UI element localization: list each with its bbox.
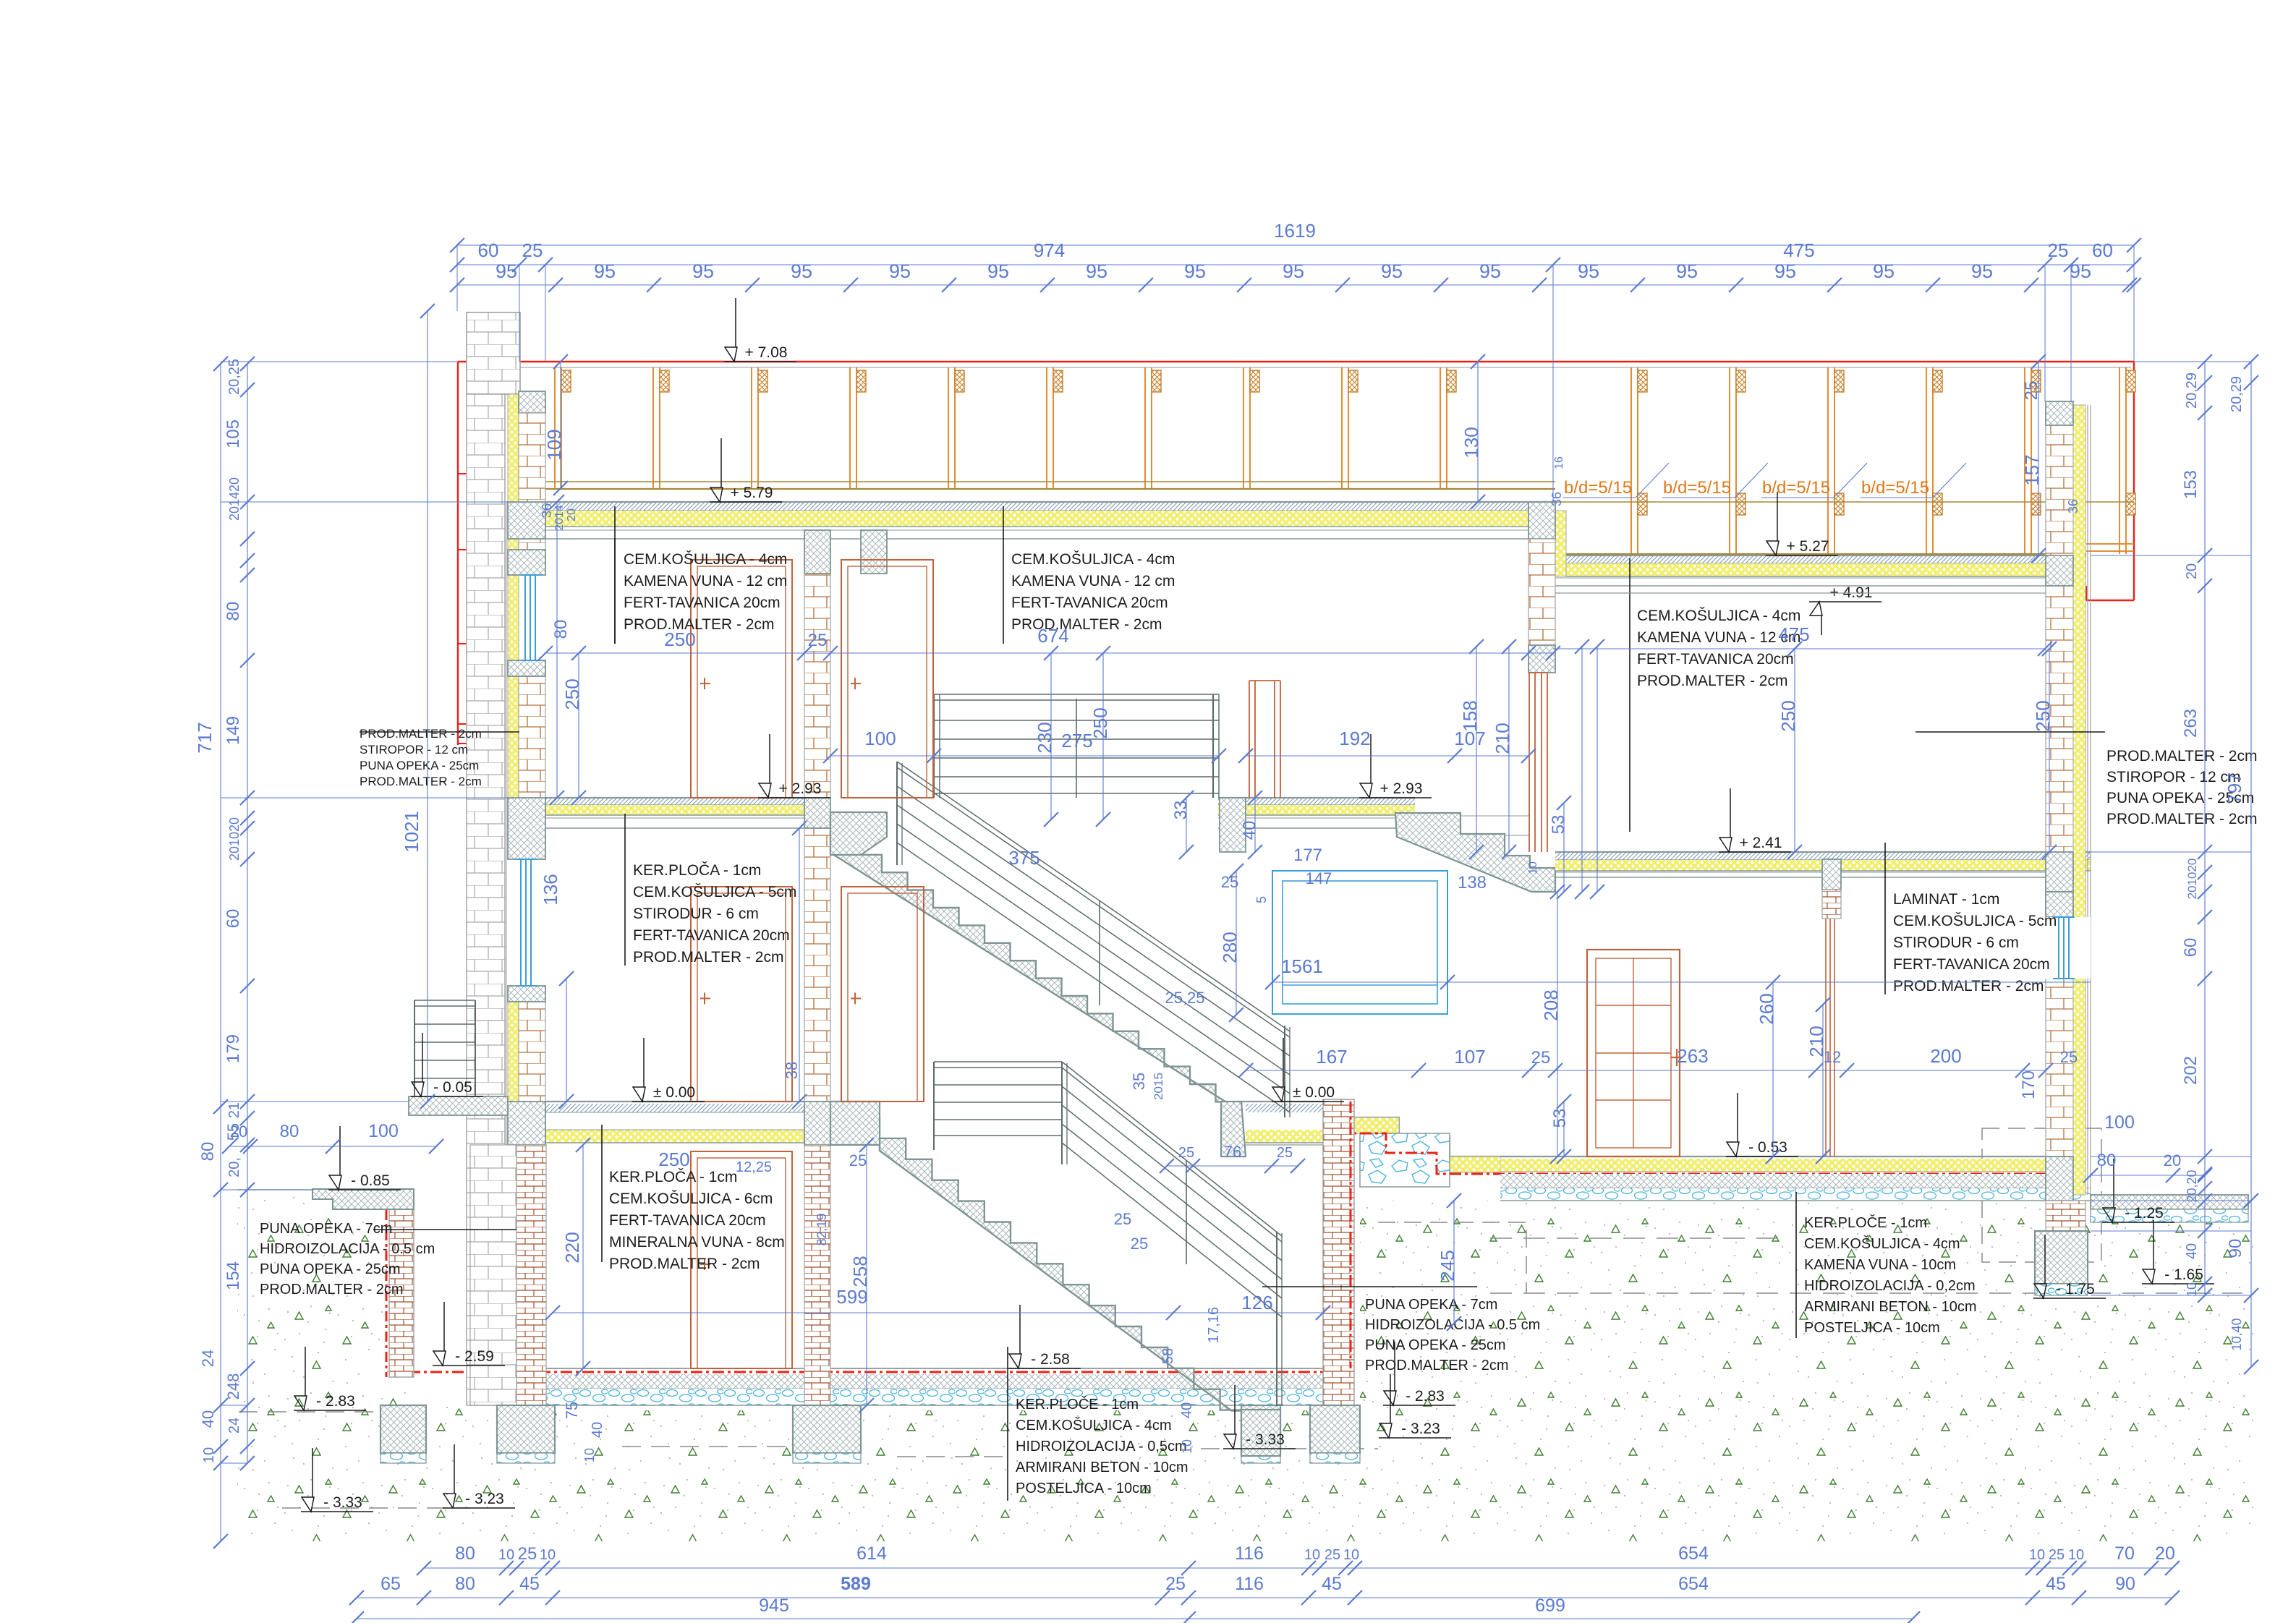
svg-text:475: 475 [1783,239,1814,261]
svg-text:+ 5.27: + 5.27 [1787,538,1829,555]
svg-text:945: 945 [759,1596,789,1616]
svg-text:25: 25 [518,1544,537,1564]
svg-text:80: 80 [455,1543,475,1564]
svg-text:PROD.MALTER - 2cm: PROD.MALTER - 2cm [1893,978,2044,994]
svg-text:192: 192 [1339,728,1370,749]
svg-text:60: 60 [2092,239,2113,261]
svg-text:PROD.MALTER - 2cm: PROD.MALTER - 2cm [360,775,482,788]
svg-text:- 3.33: - 3.33 [1246,1431,1285,1448]
svg-text:475: 475 [1778,623,1809,645]
svg-text:FERT-TAVANICA 20cm: FERT-TAVANICA 20cm [1893,956,2050,973]
svg-text:PUNA OPEKA - 7cm: PUNA OPEKA - 7cm [260,1221,392,1237]
svg-text:CEM.KOŠULJICA - 6cm: CEM.KOŠULJICA - 6cm [609,1190,773,1207]
svg-text:10: 10 [2068,1547,2084,1563]
svg-text:220: 220 [561,1232,583,1263]
svg-text:STIRODUR - 6 cm: STIRODUR - 6 cm [633,906,759,922]
svg-text:+ 5.79: + 5.79 [731,485,773,501]
svg-text:95: 95 [1971,260,1993,282]
svg-text:95: 95 [1283,260,1304,282]
svg-text:170: 170 [2019,1070,2038,1099]
svg-text:208: 208 [1540,989,1562,1021]
svg-text:95: 95 [2070,260,2091,282]
svg-text:95: 95 [1479,260,1501,282]
svg-text:25: 25 [849,1151,867,1170]
svg-text:80: 80 [280,1122,299,1141]
svg-text:100: 100 [368,1121,399,1141]
svg-text:248: 248 [224,1373,242,1400]
svg-text:10: 10 [1304,1547,1320,1563]
svg-text:149: 149 [224,716,243,745]
svg-text:177: 177 [1293,845,1322,865]
svg-text:717: 717 [194,722,216,753]
svg-text:10: 10 [582,1448,597,1462]
svg-text:95: 95 [1184,260,1206,282]
svg-text:136: 136 [540,874,561,905]
svg-text:- 2.58: - 2.58 [1031,1351,1070,1368]
svg-text:20,25: 20,25 [226,359,242,395]
svg-text:STIRODUR - 6 cm: STIRODUR - 6 cm [1893,934,2019,951]
svg-text:258: 258 [849,1256,871,1287]
svg-text:KAMENA VUNA - 10cm: KAMENA VUNA - 10cm [1804,1257,1956,1273]
svg-text:12,25: 12,25 [736,1159,772,1175]
svg-text:797: 797 [2224,772,2245,804]
svg-text:ARMIRANI BETON - 10cm: ARMIRANI BETON - 10cm [1804,1299,1977,1315]
svg-text:- 1.75: - 1.75 [2056,1281,2095,1298]
svg-text:25: 25 [1325,1547,1340,1563]
svg-text:PROD.MALTER - 2cm: PROD.MALTER - 2cm [1011,616,1162,633]
svg-text:36: 36 [2066,499,2080,514]
svg-text:- 0.05: - 0.05 [433,1079,472,1096]
svg-text:95: 95 [1774,260,1796,282]
svg-text:95: 95 [1381,260,1403,282]
svg-text:FERT-TAVANICA 20cm: FERT-TAVANICA 20cm [633,927,790,944]
svg-text:974: 974 [1034,239,1065,261]
svg-text:20: 20 [566,508,578,521]
svg-text:250: 250 [561,678,583,710]
svg-text:KAMENA VUNA - 12 cm: KAMENA VUNA - 12 cm [1011,573,1175,589]
svg-text:116: 116 [1235,1543,1264,1564]
svg-text:95: 95 [987,260,1009,282]
svg-text:20: 20 [230,1123,247,1141]
svg-text:153: 153 [2181,470,2201,499]
svg-text:201420: 201420 [227,477,242,521]
svg-text:CEM.KOŠULJICA - 4cm: CEM.KOŠULJICA - 4cm [1016,1417,1172,1434]
svg-text:20,: 20, [226,1157,242,1177]
svg-text:179: 179 [224,1034,243,1063]
svg-text:1619: 1619 [1274,220,1316,242]
svg-text:HIDROIZOLACIJA - 0.5 cm: HIDROIZOLACIJA - 0.5 cm [260,1241,435,1257]
svg-text:40: 40 [2184,1243,2200,1259]
svg-text:25: 25 [1178,1145,1194,1161]
svg-text:- 2.59: - 2.59 [455,1348,494,1365]
svg-text:- 3.23: - 3.23 [465,1491,504,1507]
svg-text:654: 654 [1678,1574,1709,1594]
svg-text:25: 25 [2060,1048,2078,1066]
svg-text:25: 25 [2048,239,2069,261]
svg-text:STIROPOR - 12 cm: STIROPOR - 12 cm [2106,769,2241,785]
svg-text:45: 45 [1322,1574,1342,1594]
svg-text:40: 40 [1179,1402,1195,1418]
svg-text:80: 80 [198,1142,218,1162]
svg-text:614: 614 [856,1543,887,1564]
svg-text:- 3.33: - 3.33 [323,1494,362,1511]
svg-text:KER.PLOČA - 1cm: KER.PLOČA - 1cm [633,862,761,879]
svg-text:+ 7.08: + 7.08 [745,344,788,361]
svg-text:± 0.00: ± 0.00 [653,1084,695,1101]
svg-text:280: 280 [1219,932,1241,963]
svg-text:25: 25 [2049,1547,2065,1563]
svg-text:24: 24 [199,1350,217,1367]
svg-text:201020: 201020 [227,817,242,861]
svg-text:CEM.KOŠULJICA - 5cm: CEM.KOŠULJICA - 5cm [1893,913,2057,929]
svg-text:25: 25 [522,239,543,261]
svg-text:60: 60 [478,239,499,261]
svg-text:25: 25 [1114,1210,1131,1228]
svg-text:+ 2.93: + 2.93 [779,780,822,797]
svg-text:80: 80 [224,602,243,621]
svg-text:PROD.MALTER - 2cm: PROD.MALTER - 2cm [624,616,774,633]
svg-text:90: 90 [2226,1239,2245,1258]
svg-text:275: 275 [1061,730,1092,751]
svg-text:201020: 201020 [2185,859,2199,900]
svg-text:POSTELJICA - 10cm: POSTELJICA - 10cm [1804,1320,1940,1336]
svg-text:5: 5 [1254,896,1269,903]
svg-text:167: 167 [1316,1046,1347,1068]
svg-text:PUNA OPEKA - 25cm: PUNA OPEKA - 25cm [1365,1337,1506,1353]
svg-text:1021: 1021 [401,811,422,853]
svg-text:95: 95 [1873,260,1895,282]
svg-text:1561: 1561 [1281,955,1323,977]
svg-text:130: 130 [1460,427,1482,458]
svg-text:75: 75 [563,1402,581,1419]
svg-text:2014: 2014 [553,505,566,531]
svg-text:10: 10 [2029,1547,2045,1563]
svg-text:80: 80 [551,620,571,639]
svg-text:PROD.MALTER - 2cm: PROD.MALTER - 2cm [2106,811,2257,827]
svg-text:- 3.23: - 3.23 [1401,1420,1440,1437]
svg-text:263: 263 [2181,709,2201,738]
svg-text:KAMENA VUNA - 12 cm: KAMENA VUNA - 12 cm [1637,629,1800,646]
svg-text:245: 245 [1437,1250,1458,1281]
svg-text:10: 10 [1343,1547,1359,1563]
svg-text:76: 76 [1224,1143,1241,1161]
svg-text:+ 2.41: + 2.41 [1740,835,1782,851]
svg-text:CEM.KOŠULJICA - 4cm: CEM.KOŠULJICA - 4cm [1637,608,1800,624]
svg-text:250: 250 [658,1149,689,1170]
svg-text:116: 116 [1235,1574,1264,1594]
svg-text:CEM.KOŠULJICA - 4cm: CEM.KOŠULJICA - 4cm [1011,551,1175,568]
svg-text:FERT-TAVANICA 20cm: FERT-TAVANICA 20cm [1637,651,1794,668]
svg-text:80: 80 [2097,1151,2117,1170]
svg-text:20: 20 [2155,1543,2175,1564]
svg-text:36: 36 [1549,492,1564,506]
svg-text:25: 25 [1165,1574,1186,1594]
svg-text:17,16: 17,16 [1206,1307,1222,1343]
svg-text:107: 107 [1454,1046,1485,1068]
svg-text:PUNA OPEKA - 25cm: PUNA OPEKA - 25cm [260,1261,401,1277]
svg-text:82,19: 82,19 [815,1213,829,1245]
svg-text:20,29: 20,29 [2229,376,2245,412]
svg-text:60: 60 [224,909,243,929]
svg-text:b/d=5/15: b/d=5/15 [1861,478,1929,498]
svg-text:40: 40 [1240,821,1259,840]
svg-text:90: 90 [2115,1574,2135,1594]
svg-text:- 2.83: - 2.83 [1406,1388,1445,1405]
svg-text:25,25: 25,25 [1165,989,1204,1007]
svg-text:25: 25 [1531,1048,1551,1068]
svg-text:70: 70 [2114,1543,2135,1564]
svg-text:± 0.00: ± 0.00 [1293,1084,1335,1101]
svg-text:PUNA OPEKA - 7cm: PUNA OPEKA - 7cm [1365,1297,1497,1313]
svg-text:100: 100 [864,728,896,749]
svg-text:10: 10 [498,1547,514,1563]
svg-text:599: 599 [836,1286,867,1308]
svg-text:154: 154 [224,1261,243,1290]
svg-text:HIDROIZOLACIJA - 0,2cm: HIDROIZOLACIJA - 0,2cm [1804,1278,1976,1294]
svg-text:147: 147 [1306,869,1332,887]
svg-text:654: 654 [1678,1543,1709,1564]
svg-text:20,29: 20,29 [2184,372,2200,409]
svg-text:PROD.MALTER - 2cm: PROD.MALTER - 2cm [360,727,482,741]
svg-text:699: 699 [1535,1596,1565,1616]
svg-text:58: 58 [1160,1348,1176,1364]
svg-text:40: 40 [590,1422,605,1438]
svg-text:PROD.MALTER - 2cm: PROD.MALTER - 2cm [1365,1358,1509,1373]
svg-text:95: 95 [496,260,517,282]
svg-text:138: 138 [1458,873,1487,893]
svg-text:STIROPOR - 12 cm: STIROPOR - 12 cm [360,743,468,757]
svg-text:589: 589 [841,1574,871,1594]
svg-text:PUNA OPEKA - 25cm: PUNA OPEKA - 25cm [360,759,479,772]
svg-text:95: 95 [889,260,911,282]
svg-text:10,40: 10,40 [2229,1318,2244,1350]
svg-text:FERT-TAVANICA 20cm: FERT-TAVANICA 20cm [624,595,781,611]
svg-text:PROD.MALTER - 2cm: PROD.MALTER - 2cm [1637,673,1787,689]
svg-text:PROD.MALTER - 2cm: PROD.MALTER - 2cm [2106,748,2257,764]
svg-text:250: 250 [664,629,695,650]
svg-text:20: 20 [2164,1151,2181,1170]
svg-text:CEM.KOŠULJICA - 5cm: CEM.KOŠULJICA - 5cm [633,884,796,900]
svg-text:65: 65 [380,1574,401,1594]
svg-text:38: 38 [783,1062,801,1079]
svg-text:202: 202 [2181,1056,2201,1085]
svg-text:250: 250 [2032,700,2054,731]
svg-text:210: 210 [1492,723,1513,754]
svg-text:- 1.65: - 1.65 [2164,1266,2203,1283]
svg-text:12: 12 [1824,1048,1841,1066]
svg-text:100: 100 [2104,1112,2135,1133]
svg-text:KER.PLOČE - 1cm: KER.PLOČE - 1cm [1804,1214,1927,1231]
svg-text:2015: 2015 [1152,1073,1165,1100]
svg-text:KAMENA VUNA - 12 cm: KAMENA VUNA - 12 cm [624,573,787,589]
svg-text:35: 35 [1130,1073,1148,1090]
svg-text:CEM.KOŠULJICA - 4cm: CEM.KOŠULJICA - 4cm [1804,1235,1960,1252]
svg-text:95: 95 [1578,260,1599,282]
svg-text:b/d=5/15: b/d=5/15 [1663,478,1731,498]
svg-text:KER.PLOČE - 1cm: KER.PLOČE - 1cm [1016,1396,1139,1413]
svg-text:10: 10 [540,1547,556,1563]
svg-text:KER.PLOČA - 1cm: KER.PLOČA - 1cm [609,1169,737,1185]
svg-text:25: 25 [1131,1235,1148,1253]
svg-text:25: 25 [1277,1145,1293,1161]
svg-text:674: 674 [1037,625,1068,647]
svg-text:PROD.MALTER - 2cm: PROD.MALTER - 2cm [609,1256,760,1272]
svg-text:80: 80 [455,1574,475,1594]
svg-text:60: 60 [2181,938,2201,958]
svg-text:PROD.MALTER - 2cm: PROD.MALTER - 2cm [260,1282,404,1298]
svg-text:b/d=5/15: b/d=5/15 [1762,478,1830,498]
svg-text:MINERALNA VUNA - 8cm: MINERALNA VUNA - 8cm [609,1234,785,1251]
svg-text:16: 16 [1553,456,1565,469]
svg-text:- 0.53: - 0.53 [1748,1139,1787,1156]
svg-text:- 1.25: - 1.25 [2125,1205,2164,1222]
svg-text:250: 250 [1777,700,1799,731]
svg-text:HIDROIZOLACIJA - 0,5cm: HIDROIZOLACIJA - 0,5cm [1016,1439,1187,1454]
svg-text:36: 36 [540,503,554,518]
svg-text:230: 230 [1034,722,1055,753]
svg-text:157: 157 [2021,454,2043,485]
svg-text:20: 20 [2184,563,2200,579]
svg-text:10: 10 [1180,1439,1194,1454]
svg-text:95: 95 [1086,260,1107,282]
svg-text:200: 200 [1930,1045,1961,1067]
svg-text:PROD.MALTER - 2cm: PROD.MALTER - 2cm [633,949,783,966]
svg-text:95: 95 [692,260,714,282]
svg-text:126: 126 [1241,1292,1272,1313]
svg-text:- 0.85: - 0.85 [351,1172,390,1189]
svg-text:95: 95 [791,260,812,282]
svg-text:109: 109 [543,429,565,460]
svg-text:FERT-TAVANICA 20cm: FERT-TAVANICA 20cm [1011,595,1168,611]
svg-text:FERT-TAVANICA 20cm: FERT-TAVANICA 20cm [609,1212,766,1229]
svg-text:375: 375 [1008,847,1039,869]
svg-text:24: 24 [226,1418,242,1434]
svg-text:105: 105 [224,419,243,448]
svg-text:CEM.KOŠULJICA - 4cm: CEM.KOŠULJICA - 4cm [624,551,787,568]
svg-text:95: 95 [1676,260,1698,282]
svg-text:40: 40 [199,1410,217,1428]
svg-text:ARMIRANI BETON - 10cm: ARMIRANI BETON - 10cm [1016,1460,1189,1475]
svg-text:45: 45 [2046,1574,2066,1594]
svg-text:20,20: 20,20 [2185,1170,2199,1202]
svg-text:- 2.83: - 2.83 [316,1393,355,1410]
svg-text:21: 21 [226,1102,242,1118]
svg-text:b/d=5/15: b/d=5/15 [1564,478,1632,498]
svg-text:+ 2.93: + 2.93 [1380,780,1423,797]
svg-text:10: 10 [1527,861,1539,874]
svg-text:260: 260 [1756,993,1777,1024]
svg-text:45: 45 [519,1574,540,1594]
svg-text:10: 10 [2185,1282,2199,1297]
svg-text:95: 95 [594,260,616,282]
svg-text:LAMINAT - 1cm: LAMINAT - 1cm [1893,891,1999,908]
svg-text:158: 158 [1459,700,1481,731]
svg-text:25: 25 [808,631,828,650]
svg-text:53: 53 [1550,1109,1570,1128]
svg-text:53: 53 [1549,815,1568,835]
svg-text:POSTELJICA - 10cm: POSTELJICA - 10cm [1016,1481,1152,1496]
svg-text:10: 10 [201,1447,217,1463]
svg-text:263: 263 [1677,1045,1708,1067]
